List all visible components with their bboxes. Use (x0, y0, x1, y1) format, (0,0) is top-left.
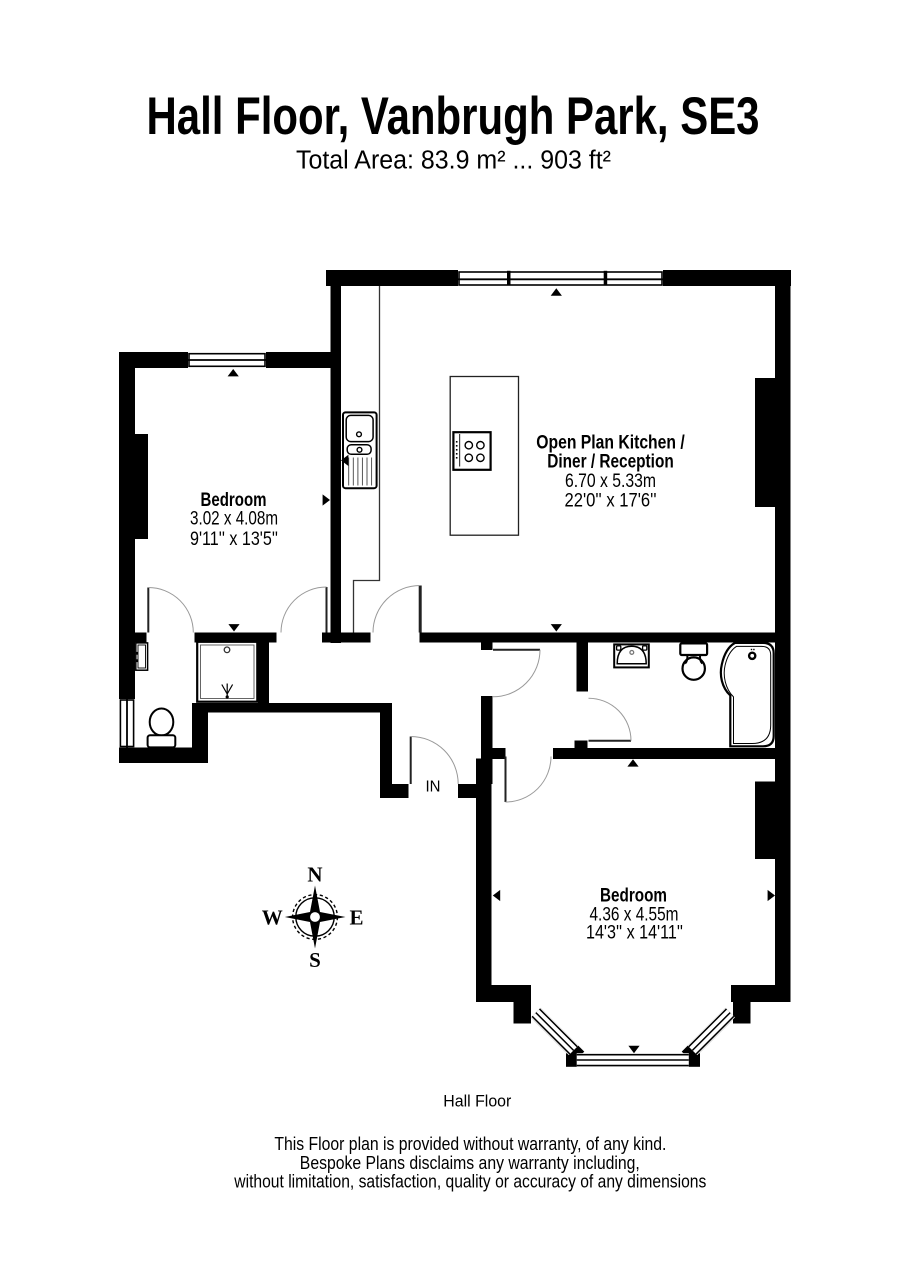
svg-text:S: S (309, 948, 321, 972)
svg-text:Total Area: 83.9 m² ... 903 ft: Total Area: 83.9 m² ... 903 ft² (296, 147, 611, 175)
svg-text:6.70 x 5.33m: 6.70 x 5.33m (565, 471, 656, 492)
svg-text:Bedroom: Bedroom (600, 886, 667, 907)
svg-text:IN: IN (426, 779, 441, 796)
svg-text:14'3'' x 14'11'': 14'3'' x 14'11'' (586, 923, 683, 944)
svg-text:Hall Floor: Hall Floor (443, 1092, 511, 1111)
svg-text:22'0'' x 17'6'': 22'0'' x 17'6'' (565, 491, 657, 512)
svg-text:Open Plan Kitchen /: Open Plan Kitchen / (536, 433, 685, 454)
svg-text:without limitation, satisfacti: without limitation, satisfaction, qualit… (233, 1172, 706, 1192)
svg-text:E: E (349, 906, 363, 930)
svg-text:3.02 x 4.08m: 3.02 x 4.08m (190, 509, 278, 530)
svg-text:Diner / Reception: Diner / Reception (547, 452, 674, 473)
svg-text:W: W (262, 906, 283, 930)
svg-text:Bespoke Plans disclaims any wa: Bespoke Plans disclaims any warranty inc… (300, 1153, 640, 1173)
svg-text:9'11'' x 13'5'': 9'11'' x 13'5'' (190, 529, 278, 550)
svg-text:This Floor plan is provided wi: This Floor plan is provided without warr… (274, 1134, 666, 1154)
svg-text:N: N (307, 863, 322, 887)
svg-text:Hall Floor, Vanbrugh Park, SE3: Hall Floor, Vanbrugh Park, SE3 (147, 87, 760, 146)
